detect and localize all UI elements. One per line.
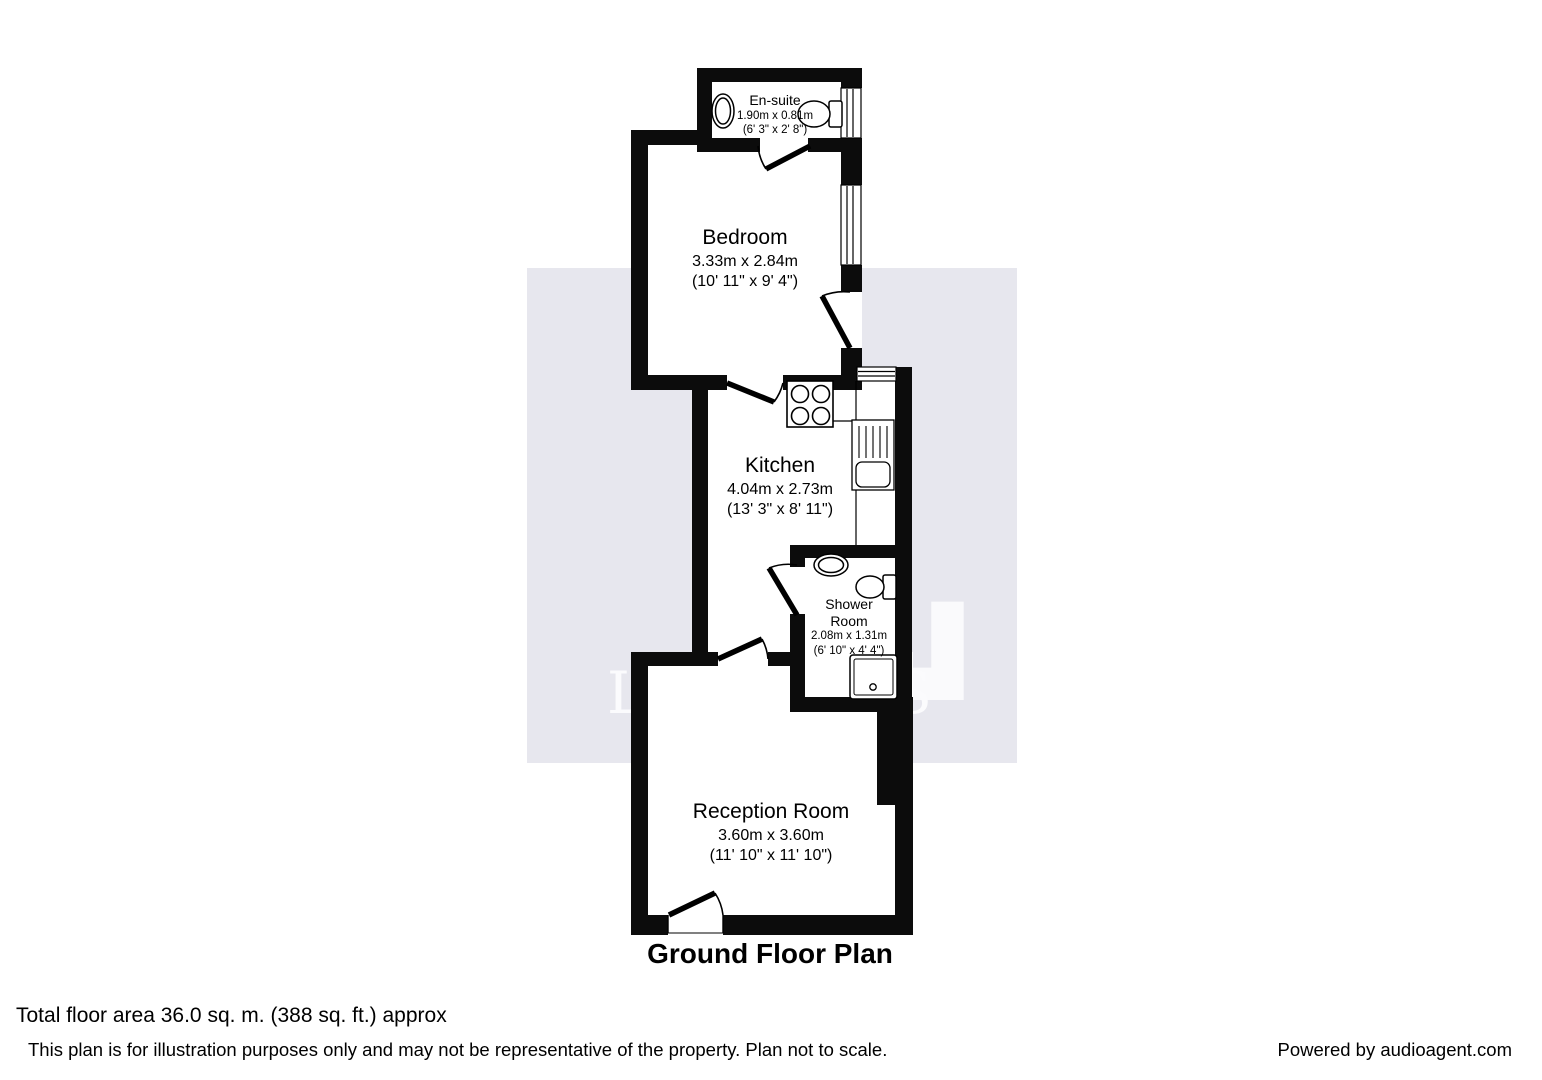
room-dims-metric: 2.08m x 1.31m — [811, 629, 887, 644]
wall — [631, 915, 668, 935]
room-dims-imperial: (6' 10" x 4' 4") — [811, 644, 887, 659]
wall — [877, 697, 913, 805]
room-dims-imperial: (11' 10" x 11' 10") — [693, 846, 849, 866]
room-name: Kitchen — [727, 453, 833, 480]
room-name: En-suite — [737, 92, 813, 109]
room-dims-metric: 3.33m x 2.84m — [692, 252, 798, 272]
disclaimer-text: This plan is for illustration purposes o… — [28, 1039, 887, 1061]
room-dims-metric: 3.60m x 3.60m — [693, 826, 849, 846]
wall — [768, 652, 792, 666]
shower-sink-icon — [814, 554, 848, 576]
room-label-bedroom: Bedroom 3.33m x 2.84m (10' 11" x 9' 4") — [692, 225, 798, 293]
wall — [631, 130, 648, 390]
wall — [841, 265, 862, 292]
wall — [631, 375, 727, 390]
total-floor-area-text: Total floor area 36.0 sq. m. (388 sq. ft… — [16, 1004, 447, 1028]
room-dims-metric: 4.04m x 2.73m — [727, 480, 833, 500]
room-label-ensuite: En-suite 1.90m x 0.81m (6' 3" x 2' 8") — [737, 92, 813, 138]
room-label-kitchen: Kitchen 4.04m x 2.73m (13' 3" x 8' 11") — [727, 453, 833, 521]
wall — [841, 68, 862, 88]
plan-title: Ground Floor Plan — [647, 938, 893, 970]
powered-by-text: Powered by audioagent.com — [1278, 1039, 1512, 1061]
kitchen-sink-icon — [852, 420, 894, 490]
hob-icon — [787, 381, 833, 427]
bedroom-window — [841, 185, 861, 265]
floorplan-page: L LEADERS — [0, 0, 1542, 1080]
wall — [723, 915, 913, 935]
wall — [841, 138, 862, 185]
room-name: Reception Room — [693, 799, 849, 826]
kitchen-window — [857, 367, 896, 381]
room-name: Bedroom — [692, 225, 798, 252]
room-dims-metric: 1.90m x 0.81m — [737, 109, 813, 124]
room-name: Room — [811, 613, 887, 630]
room-label-reception: Reception Room 3.60m x 3.60m (11' 10" x … — [693, 799, 849, 867]
wall — [692, 377, 708, 666]
ensuite-sink-icon — [712, 94, 734, 128]
room-dims-imperial: (10' 11" x 9' 4") — [692, 272, 798, 292]
room-dims-imperial: (6' 3" x 2' 8") — [737, 123, 813, 138]
wall — [697, 138, 760, 152]
room-dims-imperial: (13' 3" x 8' 11") — [727, 500, 833, 520]
floorplan-drawing: L LEADERS — [0, 0, 1542, 1080]
wall — [790, 545, 912, 558]
wall — [631, 652, 648, 935]
room-name: Shower — [811, 596, 887, 613]
ensuite-window — [841, 88, 861, 138]
wall — [697, 68, 862, 82]
shower-tray-icon — [850, 655, 897, 699]
room-label-shower-room: Shower Room 2.08m x 1.31m (6' 10" x 4' 4… — [811, 596, 887, 658]
